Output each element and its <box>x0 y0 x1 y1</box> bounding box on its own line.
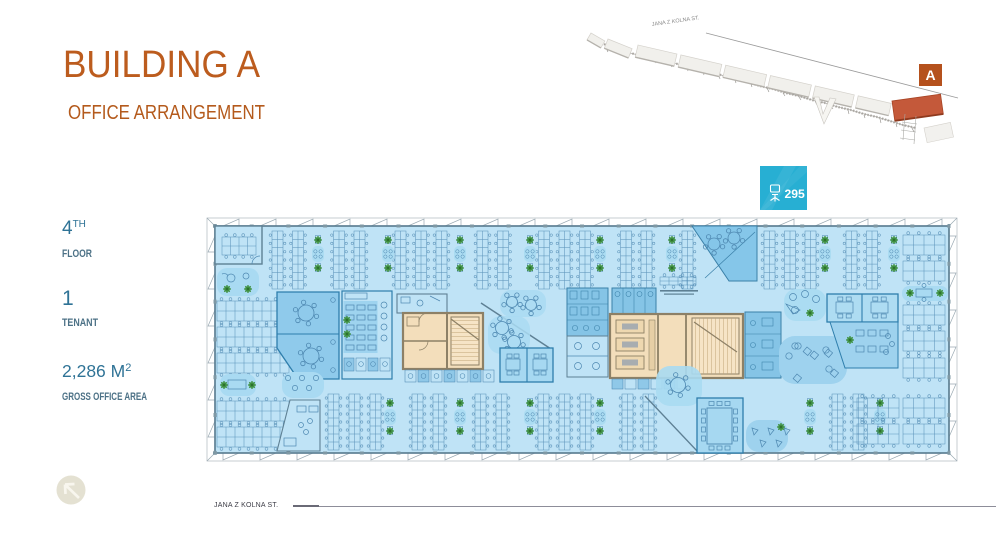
svg-text:BUILDING A: BUILDING A <box>63 44 261 86</box>
svg-text:GROSS OFFICE AREA: GROSS OFFICE AREA <box>62 391 147 403</box>
svg-text:JANA Z KOLNA ST.: JANA Z KOLNA ST. <box>651 15 700 28</box>
svg-text:OFFICE ARRANGEMENT: OFFICE ARRANGEMENT <box>68 102 265 124</box>
svg-text:4TH: 4TH <box>62 218 86 239</box>
svg-text:2,286 M2: 2,286 M2 <box>62 361 131 381</box>
svg-text:295: 295 <box>785 187 806 201</box>
svg-text:A: A <box>925 67 935 83</box>
svg-text:1: 1 <box>62 287 74 310</box>
svg-text:TENANT: TENANT <box>62 317 98 329</box>
svg-text:FLOOR: FLOOR <box>62 248 92 260</box>
